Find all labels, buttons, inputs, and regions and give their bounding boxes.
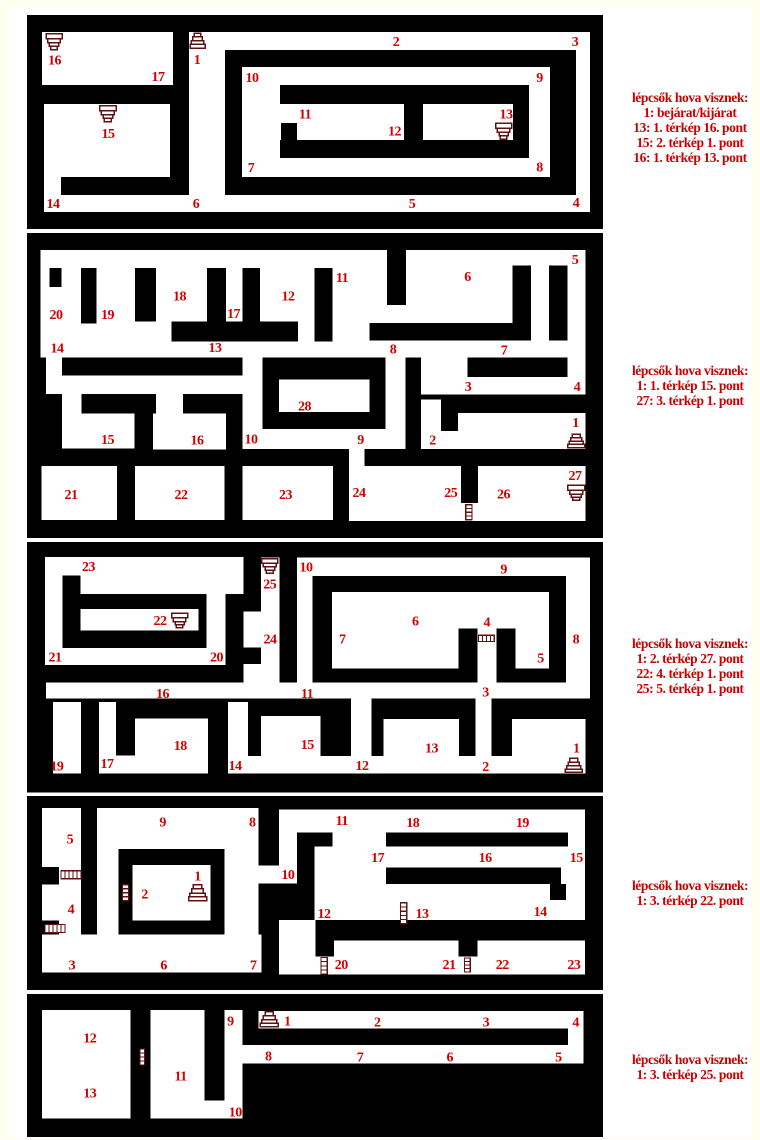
svg-text:14: 14 — [47, 197, 61, 212]
svg-text:1: 1 — [284, 1015, 291, 1030]
svg-text:9: 9 — [357, 433, 364, 448]
svg-text:10: 10 — [246, 71, 260, 86]
svg-text:11: 11 — [174, 1070, 187, 1085]
svg-text:13: 13 — [83, 1086, 97, 1101]
svg-text:14: 14 — [229, 759, 243, 774]
svg-text:19: 19 — [516, 816, 530, 831]
svg-text:21: 21 — [443, 958, 457, 973]
svg-text:21: 21 — [49, 650, 63, 665]
svg-text:13: 13 — [209, 341, 223, 356]
svg-text:28: 28 — [298, 399, 312, 414]
svg-text:15: 15 — [101, 433, 115, 448]
svg-text:7: 7 — [248, 161, 255, 176]
svg-text:25: 25 — [444, 486, 458, 501]
svg-text:7: 7 — [250, 958, 257, 973]
svg-text:18: 18 — [174, 739, 188, 754]
svg-text:20: 20 — [210, 650, 224, 665]
svg-text:6: 6 — [193, 197, 200, 212]
svg-text:13: 13 — [425, 741, 439, 756]
svg-text:22: 22 — [496, 958, 510, 973]
svg-text:17: 17 — [152, 70, 166, 85]
svg-text:15: 15 — [102, 127, 116, 142]
svg-text:8: 8 — [249, 816, 256, 831]
svg-text:6: 6 — [464, 270, 471, 285]
svg-text:17: 17 — [227, 307, 241, 322]
svg-text:24: 24 — [353, 486, 367, 501]
svg-text:10: 10 — [281, 868, 295, 883]
svg-text:12: 12 — [356, 759, 370, 774]
svg-text:12: 12 — [282, 289, 296, 304]
svg-text:22: 22 — [154, 614, 168, 629]
svg-text:19: 19 — [50, 759, 64, 774]
svg-text:11: 11 — [336, 271, 349, 286]
svg-text:11: 11 — [336, 814, 349, 829]
svg-text:13: 13 — [416, 907, 430, 922]
svg-text:1: 1 — [194, 53, 201, 68]
svg-text:24: 24 — [264, 633, 278, 648]
svg-text:27: 27 — [569, 469, 583, 484]
svg-text:23: 23 — [82, 560, 96, 575]
svg-text:5: 5 — [572, 253, 579, 268]
svg-text:10: 10 — [300, 561, 314, 576]
svg-text:23: 23 — [279, 488, 293, 503]
svg-text:5: 5 — [409, 197, 416, 212]
svg-text:5: 5 — [555, 1051, 562, 1066]
svg-text:2: 2 — [374, 1016, 381, 1031]
svg-text:26: 26 — [497, 487, 511, 502]
svg-text:10: 10 — [229, 1105, 243, 1120]
svg-text:16: 16 — [479, 851, 493, 866]
svg-text:5: 5 — [537, 651, 544, 666]
svg-text:3: 3 — [483, 1016, 490, 1031]
svg-text:15: 15 — [570, 851, 584, 866]
svg-text:21: 21 — [65, 488, 79, 503]
svg-text:20: 20 — [50, 308, 64, 323]
svg-text:2: 2 — [141, 888, 148, 903]
svg-text:11: 11 — [299, 107, 312, 122]
svg-text:12: 12 — [83, 1032, 97, 1047]
svg-text:16: 16 — [48, 53, 62, 68]
svg-text:5: 5 — [67, 833, 74, 848]
svg-text:18: 18 — [173, 289, 187, 304]
svg-text:4: 4 — [574, 380, 581, 395]
svg-text:9: 9 — [500, 562, 507, 577]
svg-text:9: 9 — [227, 1015, 234, 1030]
svg-text:17: 17 — [371, 851, 385, 866]
svg-text:18: 18 — [406, 816, 420, 831]
svg-text:15: 15 — [301, 738, 315, 753]
svg-text:2: 2 — [393, 35, 400, 50]
svg-text:3: 3 — [482, 685, 489, 700]
svg-text:13: 13 — [500, 107, 514, 122]
svg-text:22: 22 — [175, 488, 189, 503]
svg-text:8: 8 — [390, 342, 397, 357]
svg-text:7: 7 — [501, 343, 508, 358]
svg-text:9: 9 — [536, 71, 543, 86]
svg-text:8: 8 — [265, 1050, 272, 1065]
svg-text:20: 20 — [335, 958, 349, 973]
svg-text:12: 12 — [388, 124, 402, 139]
svg-text:4: 4 — [68, 903, 75, 918]
svg-text:10: 10 — [245, 432, 259, 447]
svg-text:1: 1 — [572, 416, 579, 431]
svg-text:4: 4 — [484, 615, 491, 630]
svg-text:2: 2 — [429, 433, 436, 448]
svg-text:7: 7 — [357, 1051, 364, 1066]
svg-text:23: 23 — [567, 958, 581, 973]
svg-text:3: 3 — [465, 380, 472, 395]
svg-text:17: 17 — [101, 757, 115, 772]
svg-text:3: 3 — [69, 958, 76, 973]
svg-text:12: 12 — [318, 907, 332, 922]
svg-text:6: 6 — [412, 614, 419, 629]
svg-text:6: 6 — [160, 958, 167, 973]
svg-text:4: 4 — [573, 196, 580, 211]
svg-text:1: 1 — [573, 741, 580, 756]
svg-text:8: 8 — [536, 160, 543, 175]
svg-text:2: 2 — [482, 760, 489, 775]
svg-text:14: 14 — [51, 341, 65, 356]
svg-text:6: 6 — [446, 1051, 453, 1066]
svg-text:3: 3 — [572, 35, 579, 50]
svg-text:25: 25 — [263, 578, 277, 593]
svg-text:9: 9 — [159, 816, 166, 831]
svg-text:14: 14 — [534, 905, 548, 920]
svg-text:8: 8 — [573, 632, 580, 647]
svg-text:4: 4 — [572, 1016, 579, 1031]
svg-text:19: 19 — [101, 308, 115, 323]
svg-text:16: 16 — [191, 433, 205, 448]
svg-text:7: 7 — [339, 632, 346, 647]
svg-text:16: 16 — [156, 687, 170, 702]
svg-text:11: 11 — [301, 687, 314, 702]
svg-text:1: 1 — [194, 870, 201, 885]
